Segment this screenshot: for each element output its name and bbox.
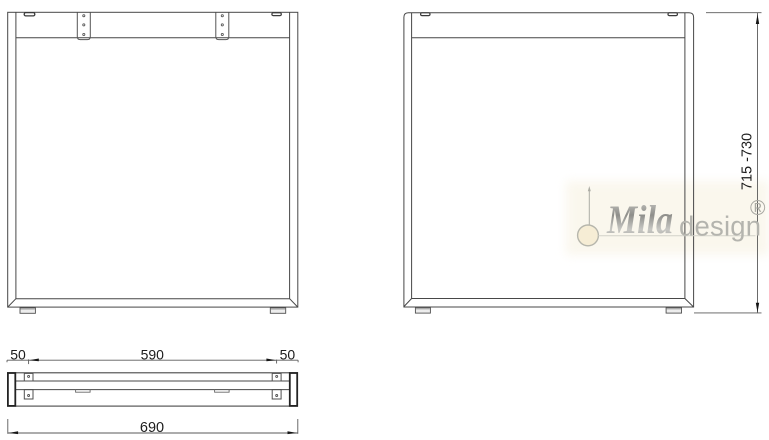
- svg-text:®: ®: [750, 197, 766, 220]
- svg-text:design: design: [679, 211, 761, 242]
- svg-text:50: 50: [10, 346, 26, 362]
- svg-text:590: 590: [141, 346, 165, 362]
- svg-text:50: 50: [280, 346, 296, 362]
- svg-text:Mila: Mila: [606, 197, 673, 242]
- svg-text:715 -730: 715 -730: [740, 133, 756, 190]
- svg-text:690: 690: [140, 420, 164, 436]
